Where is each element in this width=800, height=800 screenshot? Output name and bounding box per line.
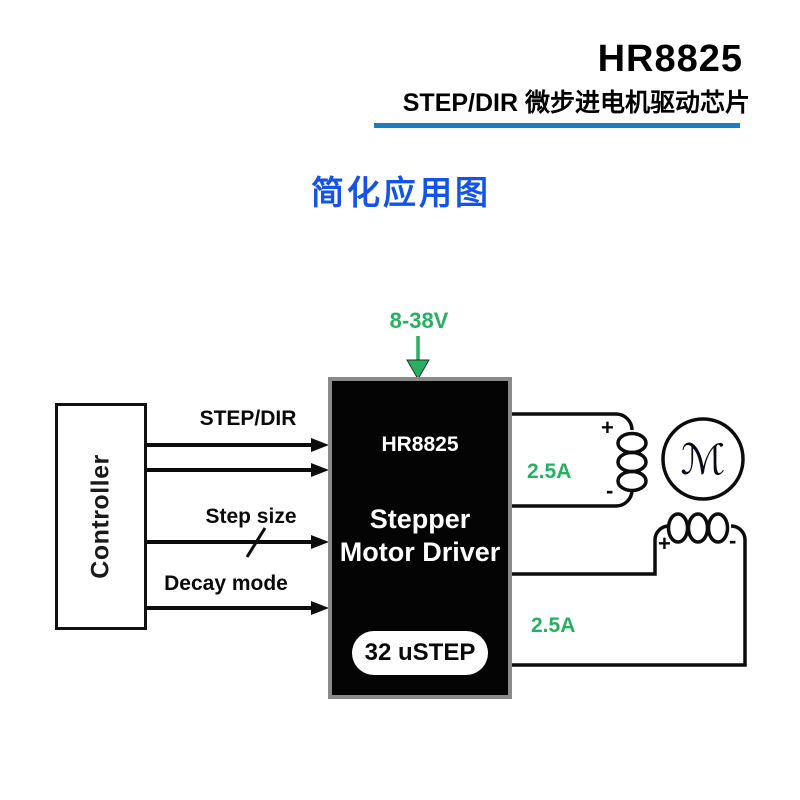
chip-function-line2: Motor Driver <box>332 536 508 569</box>
page: HR8825 STEP/DIR 微步进电机驱动芯片 简化应用图 <box>0 0 800 800</box>
winding-b-current: 2.5A <box>531 614 575 638</box>
supply-voltage-label: 8-38V <box>369 308 469 334</box>
signal-label-decay-mode: Decay mode <box>156 572 296 596</box>
chip-part-number: HR8825 <box>332 433 508 457</box>
signal-label-step-dir: STEP/DIR <box>199 407 297 431</box>
motor-symbol: ℳ <box>663 419 743 499</box>
winding-a-plus: + <box>601 418 614 438</box>
winding-b-plus: + <box>658 534 671 554</box>
controller-label: Controller <box>87 454 116 578</box>
chip-function-line1: Stepper <box>332 503 508 536</box>
winding-a-current: 2.5A <box>527 460 571 484</box>
winding-b <box>512 514 745 665</box>
driver-chip-box: HR8825 Stepper Motor Driver 32 uSTEP <box>328 377 512 699</box>
chip-function-label: Stepper Motor Driver <box>332 503 508 569</box>
winding-b-minus: - <box>729 531 736 551</box>
signal-label-step-size: Step size <box>204 505 298 529</box>
supply-arrow <box>407 336 429 379</box>
controller-box: Controller <box>55 403 147 630</box>
winding-a-minus: - <box>606 481 613 501</box>
microstep-badge: 32 uSTEP <box>352 631 488 675</box>
